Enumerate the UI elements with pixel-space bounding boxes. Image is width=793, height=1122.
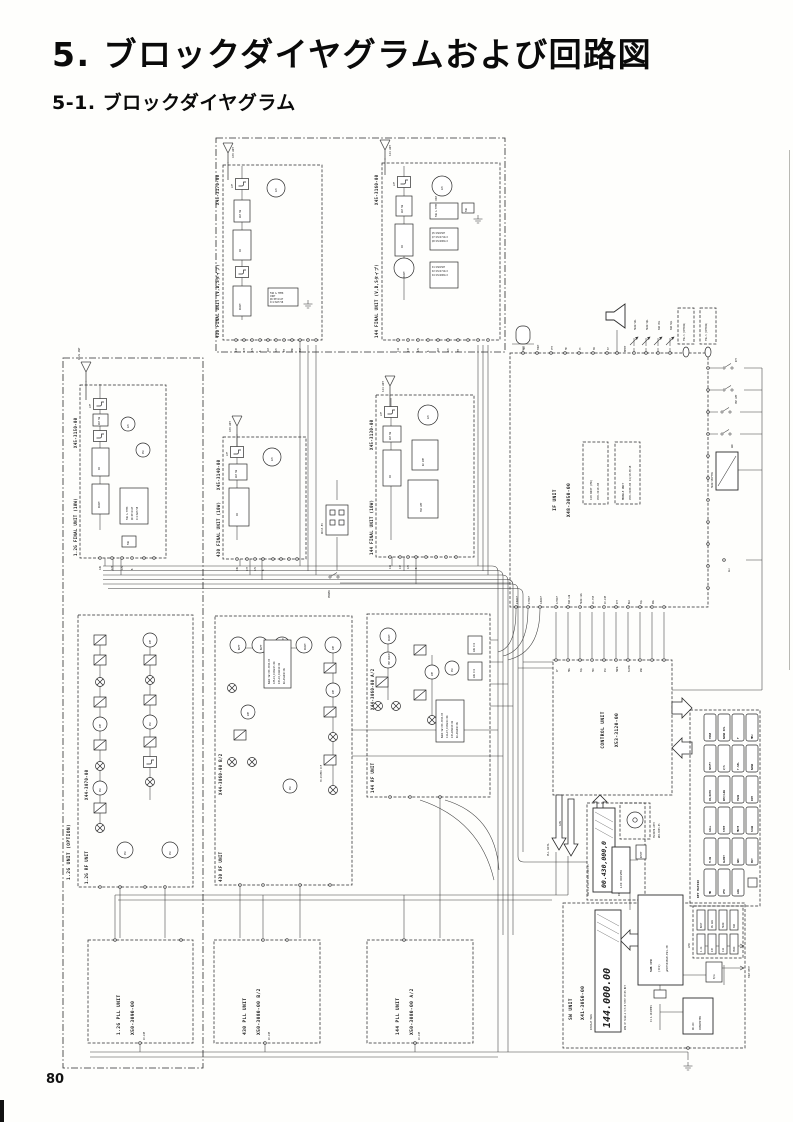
svg-text:16.75M: 16.75M: [592, 595, 595, 604]
svg-text:144 FINAL UNIT (10W): 144 FINAL UNIT (10W): [369, 500, 374, 555]
svg-text:ANT SW: ANT SW: [239, 209, 242, 218]
svg-text:SP: SP: [607, 347, 610, 350]
svg-text:430→D8&D15:ON: 430→D8&D15:ON: [451, 720, 454, 738]
svg-text:RESET: RESET: [640, 851, 643, 858]
svg-text:CONVERTER: CONVERTER: [698, 1016, 702, 1030]
svg-text:PRIO: PRIO: [733, 946, 736, 952]
option-frame: [63, 358, 203, 1068]
svg-text:SB: SB: [593, 347, 596, 350]
svg-text:APC: APC: [427, 414, 430, 419]
svg-text:12V: 12V: [251, 347, 254, 352]
svg-text:RX→D5&D16:ON: RX→D5&D16:ON: [283, 668, 286, 684]
svg-text:10.24M: 10.24M: [604, 595, 607, 604]
svg-text:144 RF UNIT: 144 RF UNIT: [370, 762, 375, 793]
sub-lcd-value: 00.430,000,0: [600, 841, 608, 888]
svg-text:43TXIF: 43TXIF: [528, 595, 531, 604]
svg-text:PA: PA: [235, 512, 239, 516]
svg-text:IF: IF: [556, 669, 559, 672]
svg-text:X48-3050-00: X48-3050-00: [566, 483, 572, 517]
svg-text:IC1:BA7718: IC1:BA7718: [270, 301, 284, 304]
svg-text:D4:2SC4081×2: D4:2SC4081×2: [432, 274, 448, 277]
svg-text:ANT SW: ANT SW: [235, 469, 238, 478]
svg-text:X58-3410-00: X58-3410-00: [596, 482, 600, 500]
svg-text:ANT SW: ANT SW: [98, 416, 101, 425]
svg-text:12TXIF: 12TXIF: [556, 595, 559, 604]
key-switch: [723, 364, 733, 370]
svg-text:TSU-5 (OPTION): TSU-5 (OPTION): [683, 323, 686, 341]
svg-text:OSC: OSC: [169, 850, 172, 855]
unit-144-final: 144 FINAL UNIT (10W) X45-3130-00 144 ANT…: [369, 376, 474, 569]
unit-label: 430 FINAL UNIT (V,D,Sタイプ): [214, 264, 220, 338]
svg-text:144: 144: [389, 564, 392, 569]
main-vol-pot: [630, 337, 638, 346]
svg-text:AMP: AMP: [247, 711, 250, 716]
svg-text:144: 144: [397, 347, 400, 352]
svg-text:DRIVE: DRIVE: [403, 271, 406, 278]
unit-144-rf: 144 RF UNIT X44-3060-00 A/2 DRIVE PRE DR…: [367, 614, 490, 798]
svg-text:TONE: TONE: [708, 732, 712, 739]
svg-text:APC: APC: [127, 423, 130, 428]
svg-text:12V: 12V: [254, 566, 257, 571]
svg-text:43T: 43T: [243, 347, 246, 352]
svg-text:DRIVE: DRIVE: [304, 643, 307, 650]
svg-text:12R: 12R: [99, 565, 102, 570]
svg-text:144 ANT: 144 ANT: [388, 145, 392, 156]
svg-text:ON AIR: ON AIR: [711, 919, 714, 928]
svg-text:B/A: B/A: [712, 974, 716, 979]
svg-text:PC: PC: [579, 347, 582, 350]
svg-text:DRIVE: DRIVE: [388, 634, 391, 641]
svg-text:ANT SW: ANT SW: [389, 431, 392, 440]
svg-text:PA/AUTO: PA/AUTO: [708, 790, 712, 801]
svg-text:X45-3150-00: X45-3150-00: [73, 417, 78, 448]
key-grid: TONE BAND SEL F MHz SHIFT V/S T.SEL BAND…: [704, 714, 758, 896]
svg-text:LPF: LPF: [89, 403, 92, 408]
svg-text:12V: 12V: [407, 564, 410, 569]
svg-text:BUSY: BUSY: [700, 922, 703, 928]
unit-label: 1.2G UNIT (OPTION): [66, 824, 72, 880]
svg-text:PA: PA: [97, 466, 101, 470]
svg-text:10.24M: 10.24M: [418, 1031, 421, 1040]
svg-text:C28 UNIT (MR): C28 UNIT (MR): [589, 479, 593, 500]
svg-text:TSU-5 (OPTION): TSU-5 (OPTION): [705, 323, 708, 341]
svg-text:430 ANT: 430 ANT: [231, 147, 235, 158]
svg-text:MR: MR: [708, 890, 712, 894]
svg-text:1.2G FINAL UNIT (10W): 1.2G FINAL UNIT (10W): [73, 498, 78, 556]
svg-text:PRE DRIVE: PRE DRIVE: [388, 652, 391, 665]
svg-text:PRD: PRD: [291, 347, 294, 352]
svg-text:SUB VOL: SUB VOL: [658, 320, 661, 330]
svg-text:PA: PA: [238, 248, 242, 252]
svg-text:T.SEL: T.SEL: [736, 762, 740, 770]
svg-text:BAND SEL: BAND SEL: [722, 726, 726, 739]
svg-text:LPF: LPF: [226, 451, 229, 456]
svg-text:PTT: PTT: [551, 345, 554, 350]
svg-text:8M: 8M: [283, 349, 286, 352]
svg-text:BAND SW X50-3050-00: BAND SW X50-3050-00: [441, 712, 444, 738]
svg-text:FAN & TEMP.: FAN & TEMP.: [126, 506, 129, 521]
unit-12g-pll: 1.2G PLL UNIT X50-3090-00 10.24M: [88, 939, 193, 1045]
svg-text:12T: 12T: [111, 565, 114, 570]
svg-text:BUFF: BUFF: [238, 644, 241, 650]
svg-text:DBL: DBL: [652, 599, 655, 604]
svg-text:X45-3130-00: X45-3130-00: [369, 419, 374, 450]
unit-144-pll: 144 PLL UNIT X50-3080-00 A/2 10.24M: [367, 939, 473, 1045]
svg-text:B: B: [427, 350, 430, 352]
svg-text:APC: APC: [441, 185, 444, 190]
svg-text:X1 4.19430MHz: X1 4.19430MHz: [650, 1004, 653, 1022]
svg-text:TRX AMP: TRX AMP: [420, 502, 423, 512]
svg-text:SUB CPU: SUB CPU: [649, 959, 653, 972]
lcd-bus-arrow: [620, 930, 640, 950]
svg-text:ABC: ABC: [731, 443, 734, 448]
svg-text:ANT SW: ANT SW: [401, 204, 404, 213]
svg-text:LPF: LPF: [393, 181, 396, 186]
svg-text:μPD75048GB-E91-3B: μPD75048GB-E91-3B: [665, 945, 669, 972]
svg-text:SUB LCD ASSY B30-0905-05: SUB LCD ASSY B30-0905-05: [587, 864, 590, 896]
svg-text:B: B: [131, 568, 134, 570]
svg-text:144→D7,D13&D14:ON: 144→D7,D13&D14:ON: [446, 715, 449, 738]
svg-text:FAN & TEMP. CONT: FAN & TEMP. CONT: [435, 195, 438, 217]
unit-430-pll: 430 PLL UNIT X50-3080-00 B/2 10.24M: [214, 939, 320, 1045]
terminal-row: [397, 339, 490, 342]
svg-text:14T: 14T: [399, 564, 402, 569]
svg-text:W02-0605-05: W02-0605-05: [658, 823, 661, 838]
sub-vol-pot: [654, 337, 662, 346]
svg-text:X45-3170-00: X45-3170-00: [215, 174, 220, 205]
svg-text:(IC1): (IC1): [657, 964, 661, 972]
svg-text:LPF: LPF: [380, 411, 383, 416]
svg-text:SCAN: SCAN: [750, 825, 754, 832]
svg-text:APC: APC: [447, 347, 450, 352]
unit-key-matrix: KEY MATRIX TONE BAND SEL F MHz SHIFT V/S…: [690, 710, 760, 906]
svg-text:B: B: [259, 350, 262, 352]
pll-data-arrow: [564, 799, 578, 856]
ground-symbol: [684, 1062, 693, 1070]
svg-text:CAN: CAN: [558, 821, 562, 826]
svg-text:144 PLL UNIT: 144 PLL UNIT: [395, 998, 401, 1035]
svg-text:Q8:2SC4081×2: Q8:2SC4081×2: [432, 240, 448, 243]
svg-text:X50-3080-00 B/2: X50-3080-00 B/2: [256, 988, 262, 1035]
svg-text:430 RF UNIT: 430 RF UNIT: [218, 851, 223, 882]
svg-text:X44-3070-00: X44-3070-00: [84, 769, 89, 800]
svg-text:430 FINAL UNIT (10W): 430 FINAL UNIT (10W): [216, 502, 221, 557]
svg-text:AVR IC2: AVR IC2: [473, 642, 476, 652]
svg-text:TWIN: TWIN: [736, 794, 740, 801]
svg-text:12V: 12V: [121, 565, 124, 570]
svg-text:TGP: TGP: [299, 347, 302, 352]
block-diagram: 1.2G UNIT (OPTION) 430 FINAL UNIT (V,D,S…: [0, 0, 793, 1122]
svg-text:REV/LOW: REV/LOW: [722, 790, 726, 801]
svg-text:X45-3160-00: X45-3160-00: [374, 174, 379, 205]
svg-text:FAN: FAN: [465, 207, 468, 212]
svg-text:MAIN: MAIN: [722, 922, 725, 928]
svg-text:MIC: MIC: [592, 667, 595, 672]
svg-text:AMP: AMP: [99, 723, 102, 728]
power-label: POWER: [327, 590, 331, 598]
svg-text:TONE BEEP: TONE BEEP: [748, 965, 751, 978]
svg-text:DIM: DIM: [750, 796, 754, 801]
main-sql-pot: [642, 337, 650, 346]
svg-text:B: B: [415, 567, 418, 569]
svg-text:ABC: ABC: [736, 858, 740, 863]
svg-text:MUTE: MUTE: [736, 825, 740, 832]
svg-text:X50-3090-00: X50-3090-00: [130, 1001, 136, 1035]
svg-text:STEP: STEP: [722, 825, 726, 832]
lcd-driver: LCD DRIVER RESET: [612, 845, 646, 893]
dc-dc-converter: [683, 998, 713, 1034]
speaker-icon: [606, 304, 625, 328]
mic-icon: [516, 326, 530, 344]
svg-text:AMP: AMP: [431, 671, 434, 676]
svg-text:MIC: MIC: [523, 345, 526, 350]
svg-text:APC: APC: [275, 347, 278, 352]
svg-text:X44-3060-00 B/2: X44-3060-00 B/2: [218, 753, 223, 795]
svg-text:1.2G: 1.2G: [700, 946, 703, 952]
svg-text:IC1:BA7718: IC1:BA7718: [136, 506, 139, 520]
svg-text:PRE AMP: PRE AMP: [735, 394, 738, 404]
svg-text:MAIN CAN: MAIN CAN: [580, 593, 583, 604]
svg-text:D1:2SK1587: D1:2SK1587: [432, 266, 446, 269]
svg-text:12RXIF: 12RXIF: [540, 595, 543, 604]
svg-text:144 ANT: 144 ANT: [381, 381, 385, 392]
unit-430-final: 430 FINAL UNIT (10W) X45-3140-00 430 ANT…: [216, 416, 306, 571]
svg-text:430: 430: [711, 947, 714, 952]
svg-text:76.455MHz XCF: 76.455MHz XCF: [320, 764, 323, 782]
rear-switches: KEY PRE AMP ABC MAIN SHIFTER ALC: [711, 357, 738, 572]
svg-text:43RXIF: 43RXIF: [516, 595, 519, 604]
svg-text:RX→D9&D16:ON: RX→D9&D16:ON: [456, 722, 459, 738]
svg-text:DC-DC: DC-DC: [691, 1022, 695, 1030]
svg-text:AMP: AMP: [332, 645, 335, 650]
svg-text:NSK: NSK: [640, 667, 643, 672]
svg-text:OSC: OSC: [99, 787, 102, 792]
svg-text:SQL: SQL: [640, 599, 643, 604]
svg-text:Q7:2SC2712×2: Q7:2SC2712×2: [432, 236, 448, 239]
svg-text:IF UNIT: IF UNIT: [552, 489, 558, 511]
svg-text:12V: 12V: [417, 347, 420, 352]
front-io: BEEP MAIN VOL MAIN SQL SUB VOL SUB SQL T…: [512, 304, 716, 357]
svg-text:430 PLL UNIT: 430 PLL UNIT: [242, 998, 248, 1035]
svg-text:RX AMP: RX AMP: [422, 457, 425, 466]
svg-text:OSC: OSC: [451, 667, 454, 672]
vds-final-frame: [216, 138, 505, 352]
svg-text:DISPLAY MAIN: DISPLAY MAIN: [590, 1014, 593, 1030]
svg-text:MAHR: MAHR: [616, 666, 619, 672]
unit-144-final-vds: 144 FINAL UNIT (V,D,Sタイプ) X45-3160-00 14…: [373, 140, 500, 352]
svg-text:1.2G ANT: 1.2G ANT: [77, 347, 81, 360]
svg-text:NEW CH SCAN A V/S B STEP CTCSS: NEW CH SCAN A V/S B STEP CTCSS BIT: [624, 985, 627, 1030]
svg-text:TONE: TONE: [537, 344, 540, 350]
svg-text:LPF: LPF: [231, 183, 234, 188]
svg-text:DSC: DSC: [604, 667, 607, 672]
svg-text:Q6:DTC114Y: Q6:DTC114Y: [131, 506, 134, 520]
svg-text:APC: APC: [275, 187, 278, 192]
svg-text:144: 144: [722, 947, 725, 952]
svg-text:1.2G RF UNIT: 1.2G RF UNIT: [84, 851, 89, 884]
svg-text:Q5:2SK1587: Q5:2SK1587: [432, 232, 446, 235]
unit-sw: SW UNIT X41-3050-00 144.000.00 DISPLAY M…: [563, 895, 751, 1049]
svg-text:1.2G PLL UNIT: 1.2G PLL UNIT: [116, 994, 122, 1035]
unit-430-rf: 430 RF UNIT X44-3060-00 B/2 BUFF BUFF PR…: [215, 616, 352, 886]
svg-text:X50-3080-00 A/2: X50-3080-00 A/2: [409, 988, 415, 1035]
tsu-option-1: [678, 308, 694, 344]
svg-text:MAIN VOL: MAIN VOL: [634, 319, 637, 330]
beep-label: BEEP: [623, 345, 627, 352]
svg-text:KEY MATRIX: KEY MATRIX: [696, 880, 700, 898]
svg-text:MODULE UNIT: MODULE UNIT: [621, 482, 625, 500]
svg-text:10.24M: 10.24M: [268, 1031, 271, 1040]
svg-text:MOL: MOL: [568, 667, 571, 672]
main-lcd-value: 144.000.00: [602, 968, 613, 1028]
svg-text:LED: LED: [687, 943, 691, 948]
dc-label: DC13.8V: [320, 523, 324, 534]
svg-text:B: B: [262, 569, 265, 571]
tsu-option-2: [700, 308, 716, 344]
svg-text:CALL: CALL: [708, 825, 712, 832]
svg-text:12M→D1,D13&D15:ON: 12M→D1,D13&D15:ON: [273, 661, 276, 684]
svg-text:SUB CAN: SUB CAN: [568, 594, 571, 604]
svg-text:MAIN SHIFTER: MAIN SHIFTER: [711, 472, 714, 488]
svg-text:43T: 43T: [246, 566, 249, 571]
led-box: LED BUSY ON AIR MAIN SUB 1.2G 430 144 PR…: [687, 906, 743, 958]
svg-text:X58-3180-00 14/18·M/18: X58-3180-00 14/18·M/18: [628, 465, 632, 500]
svg-text:430: 430: [235, 347, 238, 352]
svg-text:PA: PA: [388, 474, 392, 478]
svg-text:8M: 8M: [457, 349, 460, 352]
svg-text:OSC: OSC: [149, 721, 152, 726]
svg-text:KEY: KEY: [735, 357, 738, 362]
svg-text:14T: 14T: [407, 347, 410, 352]
svg-text:BLO: BLO: [628, 599, 631, 604]
svg-text:SQL: SQL: [580, 667, 583, 672]
sub-sql-pot: [666, 337, 674, 346]
unit-control: CONTROL UNIT X53-3120-00 IF MOL SQL MIC …: [553, 659, 672, 795]
unit-12g-final: 1.2G FINAL UNIT (10W) X45-3150-00 1.2G A…: [73, 347, 166, 570]
unit-12g-rf: 1.2G RF UNIT X44-3070-00 AMP OSC AMP OSC…: [78, 615, 193, 888]
svg-text:ANT: ANT: [267, 347, 270, 352]
svg-text:APC: APC: [271, 456, 274, 461]
svg-text:SHIFT: SHIFT: [708, 762, 712, 770]
svg-text:X53-3120-00: X53-3120-00: [614, 713, 620, 747]
svg-text:CONTROL UNIT: CONTROL UNIT: [600, 711, 606, 748]
svg-text:PA: PA: [400, 244, 404, 248]
svg-text:AMP: AMP: [332, 689, 335, 694]
svg-text:FAN: FAN: [127, 540, 130, 545]
svg-text:10.24M: 10.24M: [143, 1031, 146, 1040]
svg-text:MV: MV: [565, 347, 568, 350]
svg-text:X41-3050-00: X41-3050-00: [580, 986, 586, 1020]
svg-text:DRIVE: DRIVE: [98, 501, 101, 508]
encoder-assy: ENCODER ASSY W02-0605-05: [620, 803, 661, 839]
svg-text:OSC: OSC: [124, 850, 127, 855]
unit-if: IF UNIT X48-3050-00 C28 UNIT (MR) X58-34…: [510, 344, 709, 608]
svg-text:DRIVE: DRIVE: [239, 303, 242, 310]
svg-text:144 FINAL UNIT (V,D,Sタイプ): 144 FINAL UNIT (V,D,Sタイプ): [373, 264, 379, 338]
svg-text:ALC: ALC: [728, 567, 731, 572]
svg-text:43R: 43R: [236, 566, 239, 571]
svg-text:OSC: OSC: [289, 785, 292, 790]
svg-text:MAIN SQL: MAIN SQL: [646, 319, 649, 330]
svg-text:LCD DRIVER: LCD DRIVER: [619, 870, 623, 888]
svg-text:SUB: SUB: [733, 923, 736, 928]
svg-text:SW UNIT: SW UNIT: [568, 998, 574, 1020]
svg-text:BUFF: BUFF: [260, 644, 263, 650]
svg-text:ANT: ANT: [437, 347, 440, 352]
svg-text:MHz: MHz: [750, 734, 754, 739]
crystal: [654, 990, 666, 998]
svg-text:V/S: V/S: [722, 765, 726, 770]
svg-text:430 ANT: 430 ANT: [228, 421, 232, 432]
svg-text:PLL DATA: PLL DATA: [546, 843, 550, 856]
svg-text:OSC: OSC: [142, 449, 145, 454]
svg-text:DET: DET: [616, 599, 619, 604]
svg-text:ENCODER ASSY: ENCODER ASSY: [653, 822, 656, 838]
svg-text:VFO: VFO: [722, 889, 726, 894]
svg-text:AMP: AMP: [149, 639, 152, 644]
svg-text:ENT: ENT: [750, 858, 754, 863]
unit-430-final-vds: 430 FINAL UNIT (V,D,Sタイプ) X45-3170-00 43…: [214, 143, 322, 352]
svg-text:D2:2SC2712×2: D2:2SC2712×2: [432, 270, 448, 273]
svg-text:SAIHR: SAIHR: [628, 665, 631, 672]
svg-text:M.IN: M.IN: [708, 856, 712, 863]
manual-page: { "page": { "title": "5. ブロックダイヤグラムおよび回路…: [0, 0, 793, 1122]
svg-text:BAND SW X50-3050-00: BAND SW X50-3050-00: [268, 658, 271, 684]
svg-text:LOW: LOW: [736, 889, 740, 894]
svg-text:AVR IC1: AVR IC1: [473, 668, 476, 678]
svg-text:430→D2,D4&D14:ON: 430→D2,D4&D14:ON: [278, 662, 281, 684]
svg-text:ALERT: ALERT: [722, 855, 726, 863]
svg-text:SUB SQL: SUB SQL: [670, 320, 673, 330]
svg-text:X45-3140-00: X45-3140-00: [216, 459, 221, 490]
svg-text:BAND: BAND: [750, 763, 754, 770]
